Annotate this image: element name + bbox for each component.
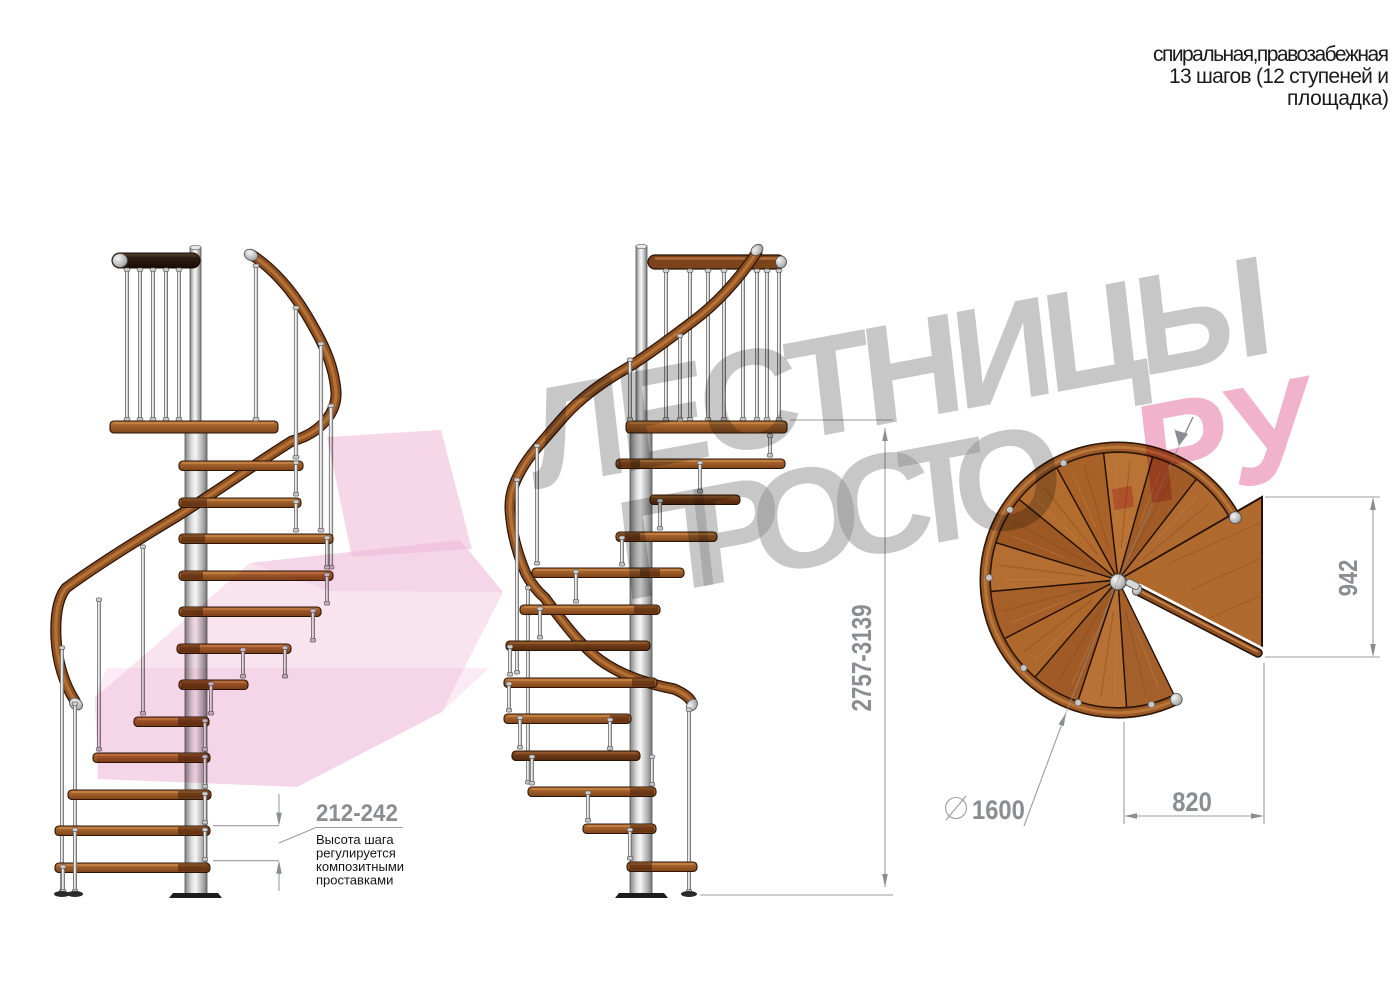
svg-text:1600: 1600 <box>972 796 1025 826</box>
svg-text:2757-3139: 2757-3139 <box>847 604 878 711</box>
svg-text:820: 820 <box>1172 788 1212 818</box>
svg-text:212-242: 212-242 <box>316 799 398 826</box>
svg-text:942: 942 <box>1334 560 1363 597</box>
svg-text:спиральная,правозабежная: спиральная,правозабежная <box>1153 43 1389 66</box>
svg-text:проставками: проставками <box>316 873 393 888</box>
svg-text:площадка): площадка) <box>1287 87 1389 110</box>
svg-text:13 шагов (12 ступеней и: 13 шагов (12 ступеней и <box>1169 65 1389 88</box>
